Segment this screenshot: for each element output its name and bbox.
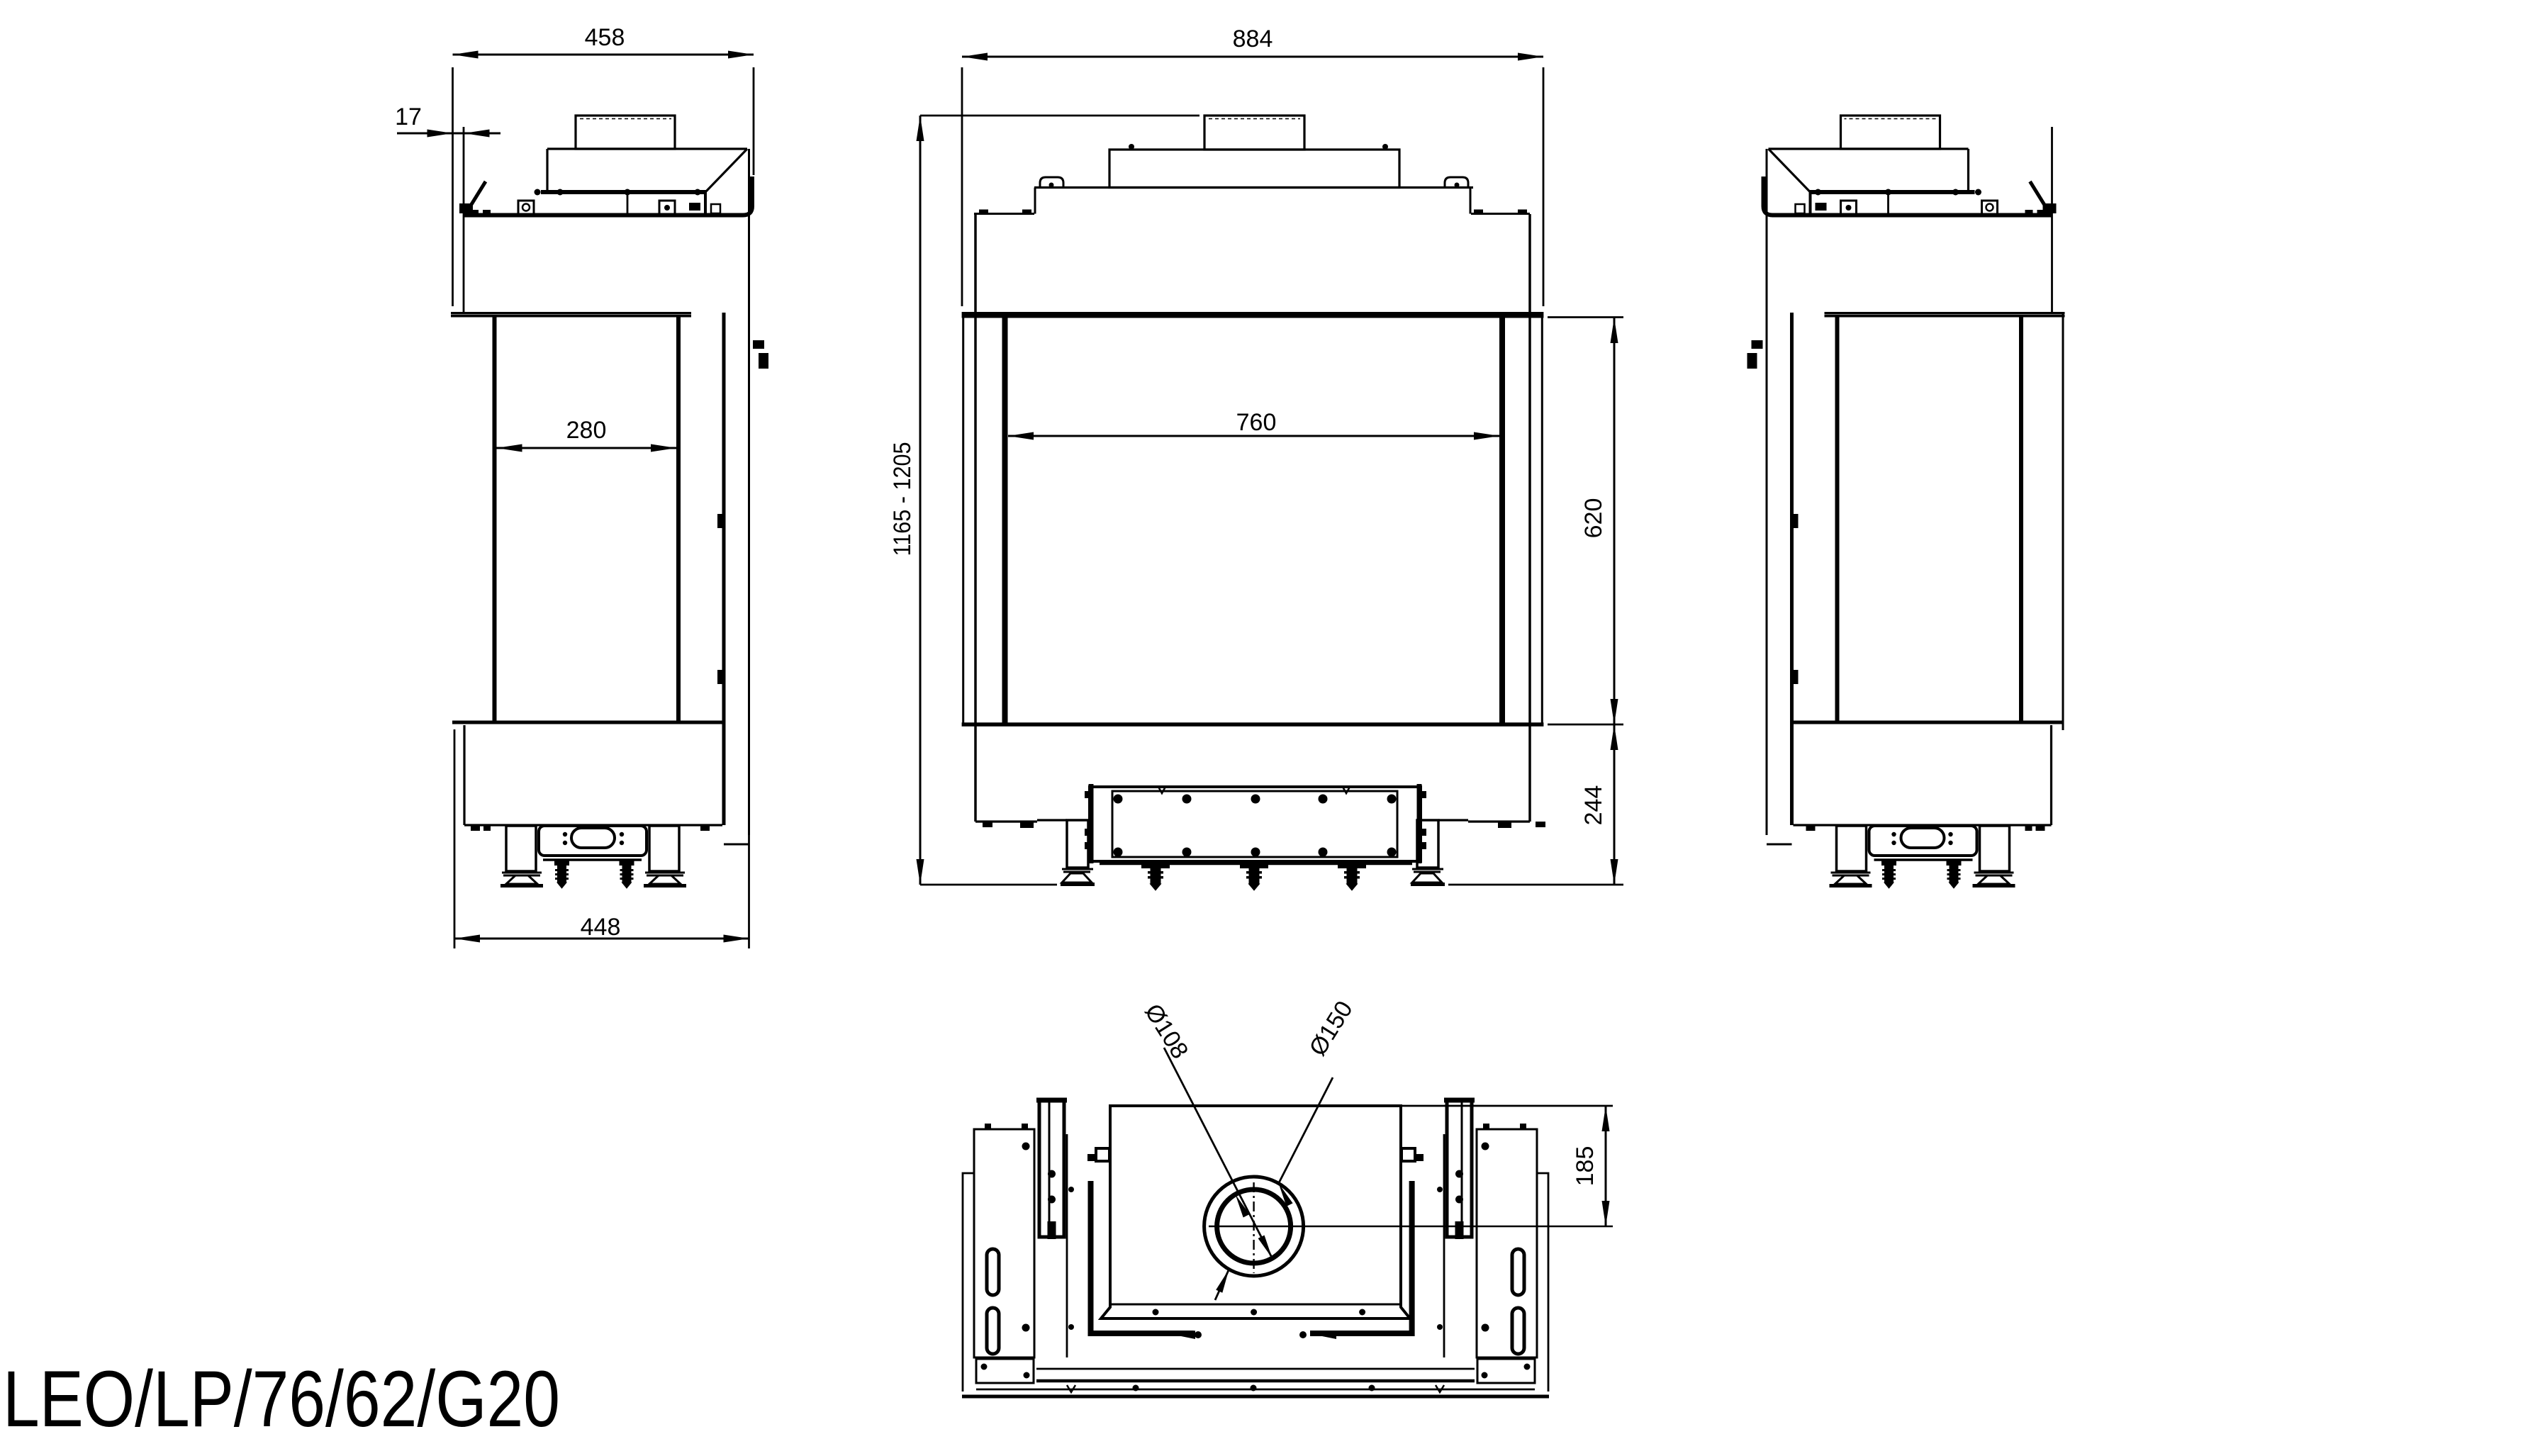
svg-text:620: 620: [1580, 498, 1607, 539]
svg-text:244: 244: [1580, 785, 1607, 826]
svg-text:LEO/LP/76/62/G20: LEO/LP/76/62/G20: [3, 1355, 560, 1443]
svg-text:458: 458: [585, 24, 625, 51]
svg-text:760: 760: [1236, 409, 1277, 436]
svg-text:1165 - 1205: 1165 - 1205: [889, 442, 916, 556]
svg-text:185: 185: [1572, 1146, 1599, 1187]
svg-text:17: 17: [395, 103, 422, 130]
svg-text:884: 884: [1233, 26, 1273, 52]
svg-text:448: 448: [581, 914, 621, 941]
svg-text:Ø150: Ø150: [1304, 997, 1358, 1061]
svg-text:Ø108: Ø108: [1139, 999, 1193, 1064]
svg-text:280: 280: [566, 417, 607, 444]
